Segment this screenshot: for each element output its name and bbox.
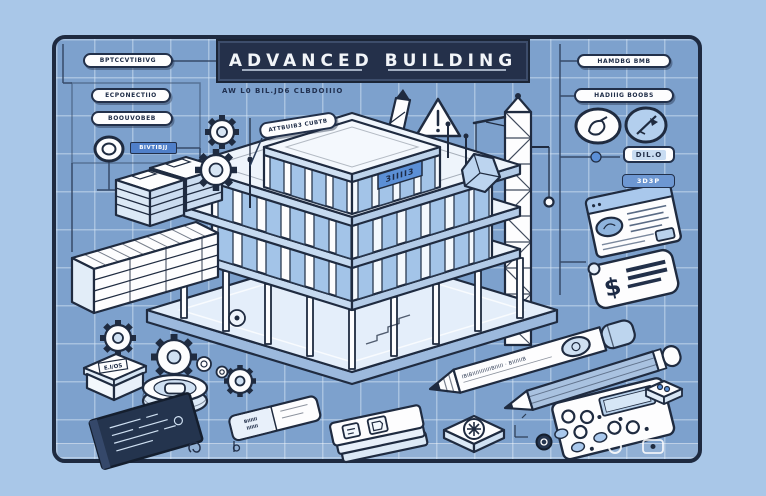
left-chip: BIVTIBJJ — [130, 142, 177, 154]
gear-icon — [205, 115, 239, 149]
blueprint-poster: 3IIII3 — [0, 0, 766, 496]
title-underline — [242, 69, 362, 71]
label-loading-boards: HADIIIG BOOBS — [574, 88, 674, 103]
ring-post-icon — [95, 137, 123, 161]
node-dot — [591, 152, 601, 162]
title-underline — [388, 69, 506, 71]
browser-card — [585, 181, 682, 258]
parts-box: E.I/OS — [84, 354, 146, 400]
trowel-badge-icon — [576, 109, 620, 143]
page-title: ADVANCED BUILDING — [229, 51, 517, 71]
label-specifications: BPTCCVTIBIVG — [83, 53, 173, 68]
document-stack — [329, 405, 428, 464]
chip-3d3p: 3D3P — [622, 174, 675, 188]
chip-dilo-text: DIL.O — [632, 150, 667, 160]
star-tile — [444, 416, 504, 452]
title-banner: ADVANCED BUILDING — [218, 41, 528, 81]
eraser: BIIIIII IIIIIII — [228, 395, 321, 441]
label-handling-bars: HAMDBG BMB — [577, 54, 671, 68]
subtitle-text: AW L0 BIL.JD6 CLBDOIIIO — [222, 86, 432, 96]
ring-icon — [197, 357, 228, 378]
gear-icon — [151, 334, 197, 380]
chip-dilo: DIL.O — [623, 146, 675, 163]
label-components: ECPONECTIIO — [91, 88, 171, 103]
gear-icon — [224, 365, 256, 397]
platform-doodle-dot — [235, 316, 240, 321]
spiral-doodle — [189, 441, 239, 452]
gear-icon — [100, 320, 136, 356]
black-ring-button — [537, 435, 552, 450]
warning-triangle-icon — [416, 99, 460, 136]
dimension-doodle — [515, 414, 528, 437]
label-resources: BOOUVOBEB — [91, 111, 173, 126]
tablet-sketch — [89, 393, 203, 470]
gear-icon — [195, 149, 237, 191]
tool-badge-icon — [626, 108, 666, 142]
